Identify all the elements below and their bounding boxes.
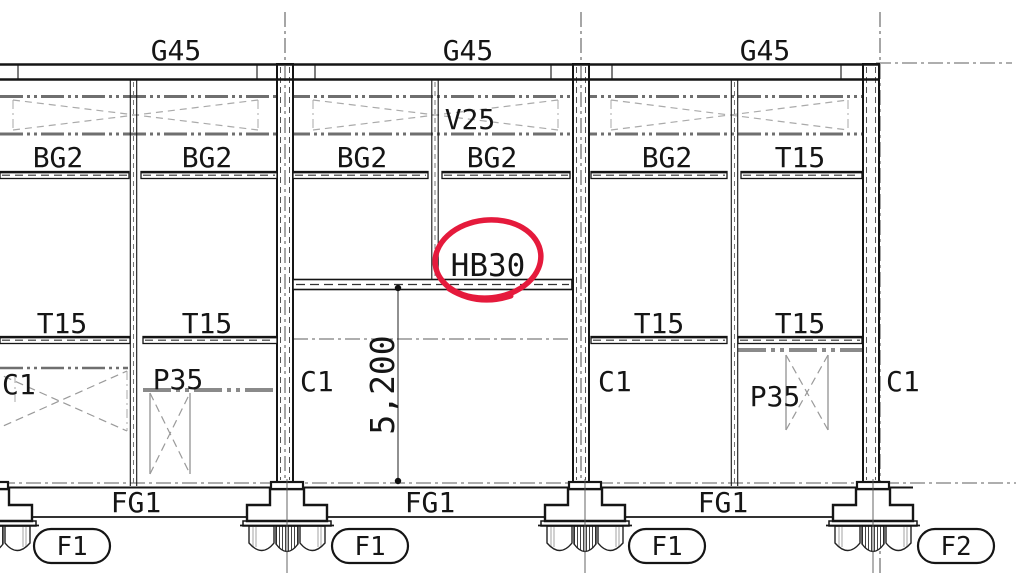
footing-tag: F2 — [940, 532, 971, 562]
upper-beam-label: BG2 — [337, 141, 388, 174]
footing-tag: F1 — [354, 532, 385, 562]
roof-girder-label: G45 — [151, 34, 202, 67]
tie-beam-label: T15 — [37, 307, 88, 340]
tie-beam-label: T15 — [182, 307, 233, 340]
tie-beam-label: T15 — [634, 307, 685, 340]
upper-beam-label: T15 — [775, 141, 826, 174]
drawing-canvas: F1 F1 F1 F2 G45 G45 G45 V25 BG2 BG2 BG2 … — [0, 0, 1024, 576]
roof-girder-label: G45 — [740, 34, 791, 67]
dimension-text: 5,200 — [363, 335, 402, 434]
pier-label: P35 — [750, 380, 801, 413]
structural-elevation-drawing: F1 F1 F1 F2 G45 G45 G45 V25 BG2 BG2 BG2 … — [0, 0, 1024, 576]
upper-beam-label: BG2 — [467, 141, 518, 174]
vent-beam-label: V25 — [445, 103, 496, 136]
pier-label: P35 — [153, 363, 204, 396]
upper-beam-label: BG2 — [642, 141, 693, 174]
roof-girder-label: G45 — [443, 34, 494, 67]
foundation-girder-label: FG1 — [405, 486, 456, 519]
footing-tag: F1 — [56, 532, 87, 562]
column-label: C1 — [886, 365, 920, 398]
upper-beam-label: BG2 — [33, 141, 84, 174]
column-label: C1 — [300, 365, 334, 398]
column-label: C1 — [2, 368, 36, 401]
column-label: C1 — [598, 365, 632, 398]
foundation-girder-label: FG1 — [698, 486, 749, 519]
tie-beam-label: T15 — [775, 307, 826, 340]
footing-tag: F1 — [651, 532, 682, 562]
column-3 — [863, 64, 879, 483]
hanging-beam-label: HB30 — [451, 248, 526, 284]
foundation-girder-label: FG1 — [111, 486, 162, 519]
upper-beam-label: BG2 — [182, 141, 233, 174]
column-2 — [573, 64, 589, 483]
column-1 — [277, 64, 293, 483]
